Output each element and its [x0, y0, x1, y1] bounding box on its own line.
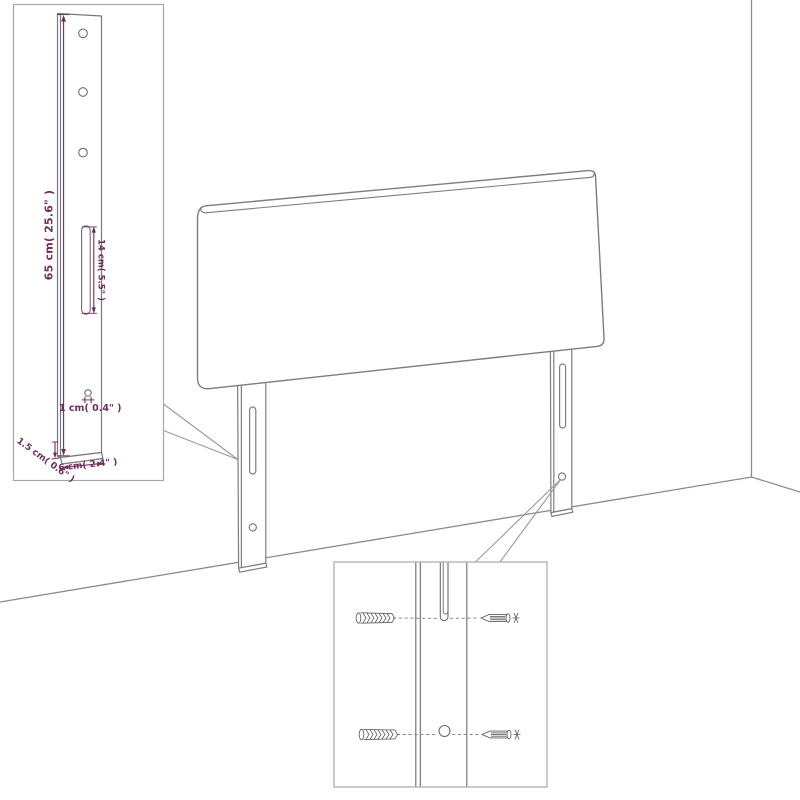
label-leg-height: 65 cm( 25.6" )	[44, 190, 55, 281]
detail-leg-hole-3	[79, 148, 88, 157]
wedge-left-lower-line	[164, 431, 238, 460]
wedge-left-upper-line	[164, 404, 238, 460]
headboard-assembly-diagram: 65 cm( 25.6" ) 14 cm( 5.5" ) 1 cm( 0.4" …	[0, 0, 800, 800]
left-leg-slot	[250, 407, 256, 474]
right-leg-slot	[560, 364, 566, 428]
right-leg-hole	[558, 473, 565, 480]
panel-outline	[198, 171, 605, 389]
detail-leg-slot	[82, 226, 91, 314]
left-leg-hole	[249, 524, 256, 531]
label-hole-diameter: 1 cm( 0.4" )	[59, 404, 122, 414]
wedge-right-right-line	[500, 479, 561, 562]
detail-leg-small-hole	[85, 390, 91, 396]
detail-leg-hole-2	[79, 88, 88, 97]
label-slot-length: 14 cm( 5.5" )	[96, 239, 105, 301]
headboard-panel	[198, 171, 605, 389]
headboard-left-leg	[238, 375, 267, 572]
diagram-linework	[0, 0, 800, 800]
detail-leg-hole-1	[79, 29, 88, 38]
detail-box-mounting-hardware	[334, 562, 547, 787]
callout-wedge-left	[164, 404, 238, 460]
headboard-right-leg	[550, 342, 572, 516]
